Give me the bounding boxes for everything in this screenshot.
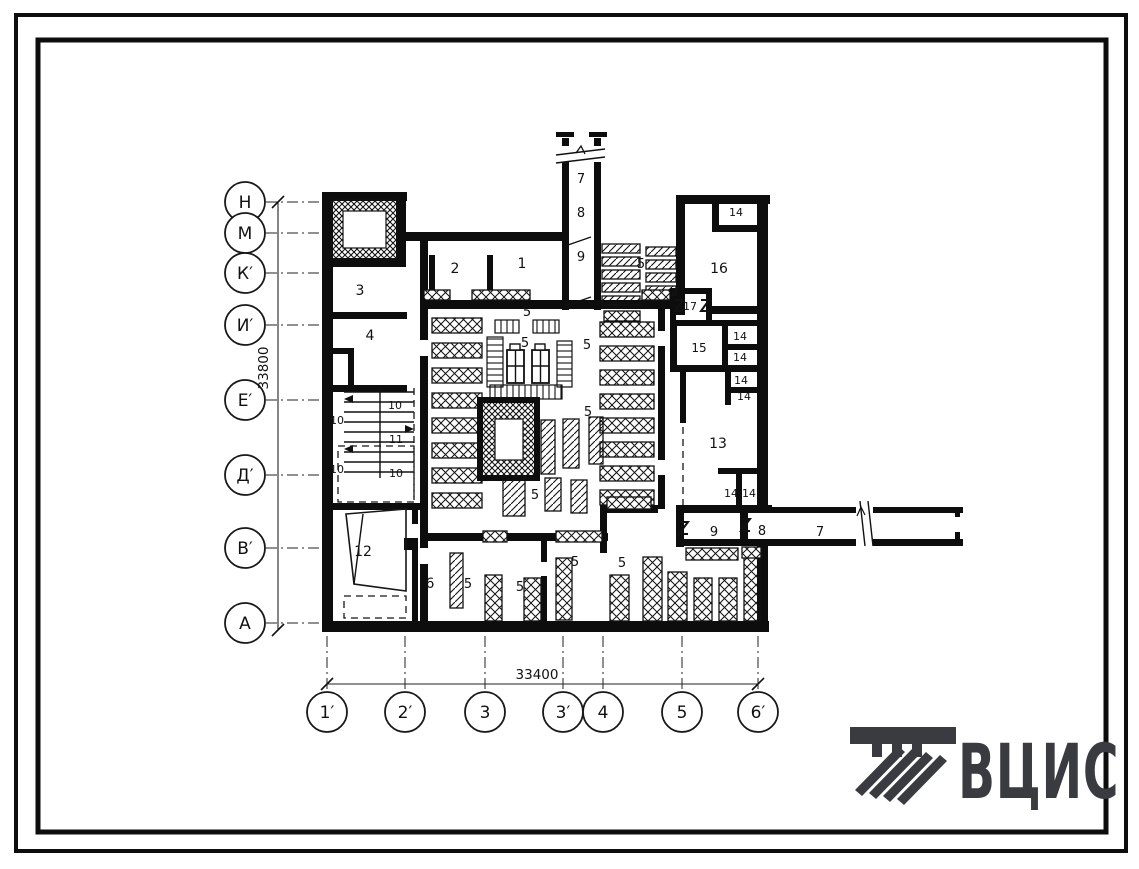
axis-label-left: К′	[237, 264, 253, 284]
room-label-14: 14	[742, 487, 756, 500]
room-label-14: 14	[724, 487, 738, 500]
vcis-logo: ВЦИС	[850, 727, 1119, 817]
room-label-5: 5	[521, 336, 529, 351]
elevator-shaft	[480, 400, 537, 478]
room-label-17: 17	[683, 300, 697, 313]
room-label-16: 16	[710, 261, 728, 277]
room-label-11: 11	[389, 433, 403, 446]
vcis-logo-text: ВЦИС	[958, 729, 1119, 817]
dimension-horizontal: 33400	[321, 667, 764, 690]
room-label-9: 9	[710, 525, 718, 540]
axis-label-bottom: 3′	[556, 703, 571, 723]
room-label-14: 14	[737, 390, 751, 403]
room-label-2: 2	[451, 261, 460, 277]
room-label-7: 7	[577, 172, 585, 187]
room-label-10: 10	[330, 463, 344, 476]
room-label-7: 7	[816, 525, 824, 540]
room-label-10: 10	[388, 399, 402, 412]
axis-label-bottom: 3	[480, 703, 491, 723]
axis-label-left: Е′	[238, 391, 253, 411]
room-label-5: 5	[637, 257, 645, 272]
room-label-14: 14	[729, 206, 743, 219]
room-label-15: 15	[691, 341, 706, 355]
room-label-10: 10	[389, 467, 403, 480]
axis-label-bottom: 5	[677, 703, 688, 723]
axis-label-bottom: 6′	[751, 703, 766, 723]
axis-label-bottom: 1′	[320, 703, 335, 723]
axes-left: НМК′И′Е′Д′В′А	[225, 182, 322, 643]
blueprint-drawing: НМК′И′Е′Д′В′А 1′2′33′456′ 12345555556555…	[0, 0, 1139, 869]
break-mark-right	[856, 501, 873, 546]
dim-33400: 33400	[516, 667, 559, 683]
axis-label-left: М	[238, 224, 253, 244]
axis-label-left: И′	[237, 316, 254, 336]
room-label-5: 5	[464, 577, 472, 592]
axis-label-left: Н	[239, 193, 252, 213]
dim-33800: 33800	[256, 347, 272, 390]
ramp-room-12	[344, 509, 406, 618]
room-label-5: 5	[571, 555, 579, 570]
equipment-symbol	[532, 344, 549, 383]
room-label-8: 8	[577, 206, 585, 221]
room-label-14: 14	[733, 330, 747, 343]
room-label-10: 10	[330, 414, 344, 427]
room-label-14: 14	[733, 351, 747, 364]
blueprint-page: НМК′И′Е′Д′В′А 1′2′33′456′ 12345555556555…	[0, 0, 1139, 869]
room-label-1: 1	[518, 256, 527, 272]
vcis-logo-icon	[850, 727, 956, 805]
room-label-8: 8	[758, 524, 766, 539]
room-label-4: 4	[366, 328, 375, 344]
room-label-5: 5	[523, 305, 531, 320]
room-label-13: 13	[709, 436, 727, 452]
axis-label-bottom: 2′	[398, 703, 413, 723]
room-label-5: 5	[618, 556, 626, 571]
room-label-5: 5	[584, 405, 592, 420]
room-label-14: 14	[734, 374, 748, 387]
axis-label-left: В′	[237, 539, 253, 559]
room-label-5: 5	[516, 580, 524, 595]
room-label-5: 5	[583, 338, 591, 353]
room-label-12: 12	[354, 544, 372, 560]
room-label-6: 6	[426, 576, 435, 592]
axis-label-left: Д′	[236, 466, 253, 486]
room-label-5: 5	[531, 488, 539, 503]
room-label-9: 9	[577, 250, 585, 265]
room-label-3: 3	[356, 283, 365, 299]
axis-label-left: А	[239, 614, 251, 634]
axis-label-bottom: 4	[598, 703, 609, 723]
break-mark-top	[556, 146, 605, 163]
